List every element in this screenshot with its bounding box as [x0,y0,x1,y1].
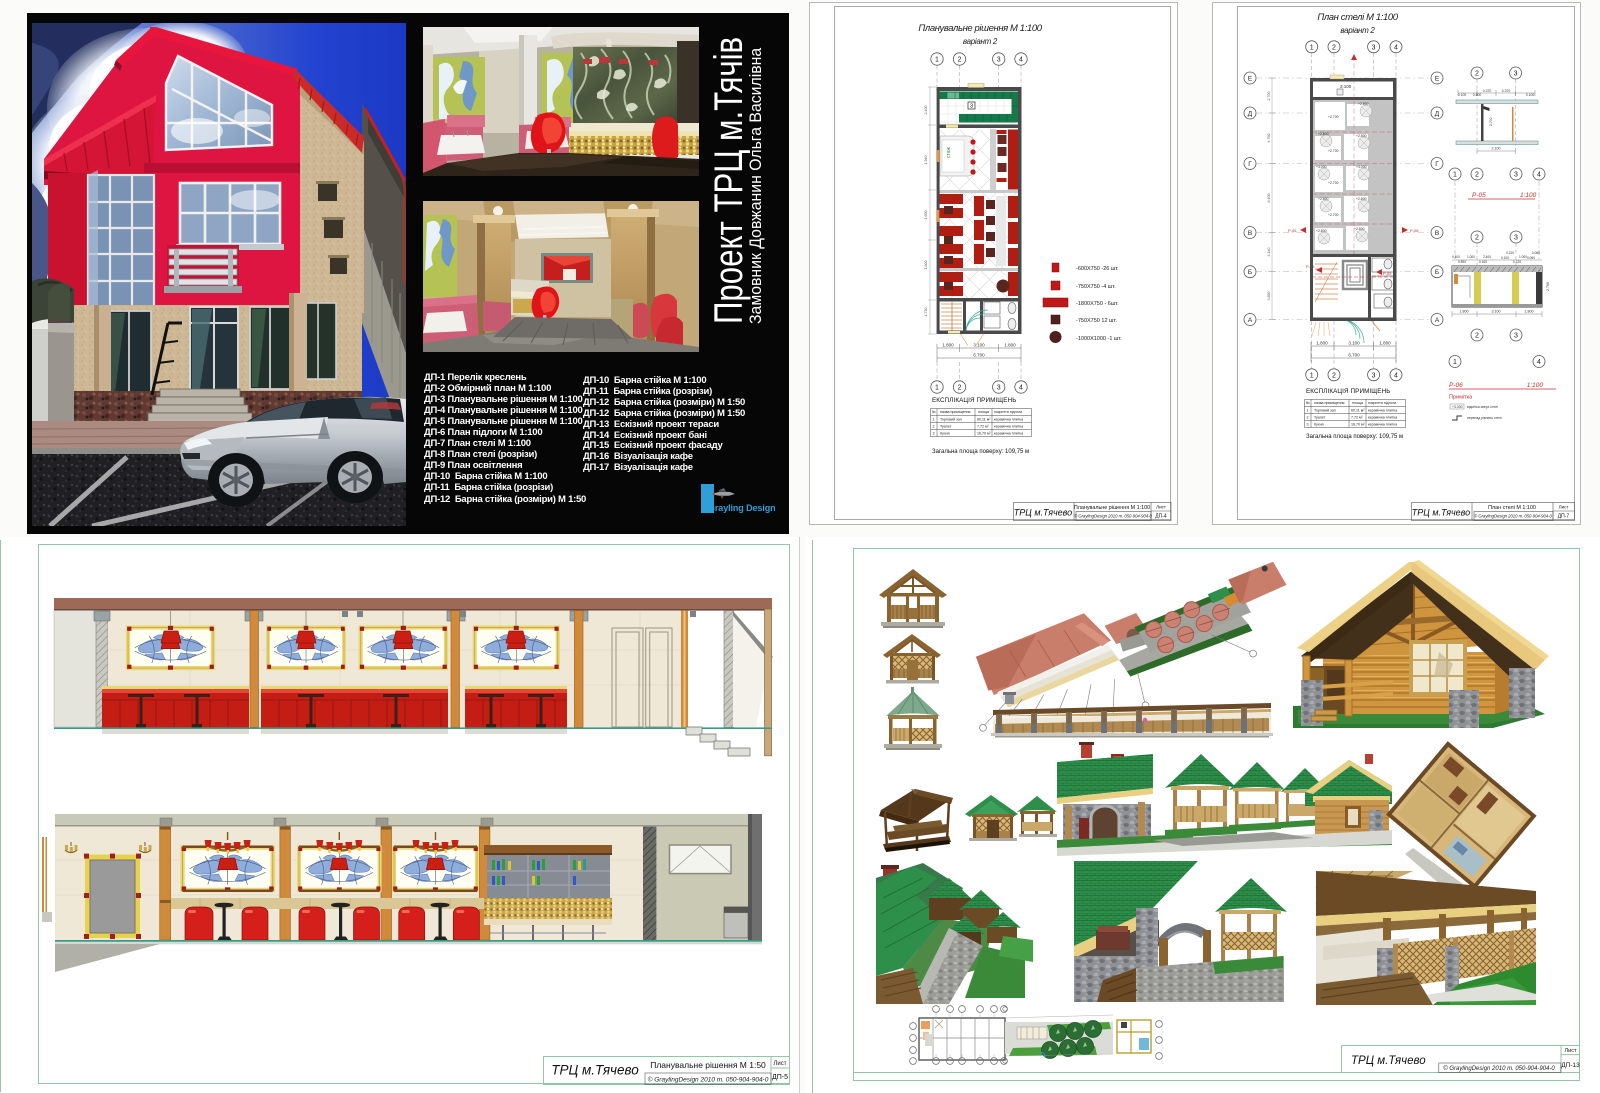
svg-text:2: 2 [933,425,935,429]
svg-text:-750X750 12 шт.: -750X750 12 шт. [1076,318,1117,324]
svg-text:3.100: 3.100 [1348,341,1360,346]
svg-text:№: № [932,410,936,414]
svg-text:3: 3 [1307,423,1309,427]
svg-text:2: 2 [958,385,962,392]
svg-text:1: 1 [933,418,935,422]
svg-text:1: 1 [1310,372,1314,379]
svg-text:1.600: 1.600 [924,211,928,220]
svg-text:відмітка зверх стелі: відмітка зверх стелі [1467,405,1498,409]
svg-text:+2.700: +2.700 [1328,149,1339,153]
svg-text:ТРЦ м.Тячево: ТРЦ м.Тячево [551,1063,639,1078]
svg-text:4: 4 [1394,44,1398,51]
svg-text:+2.700: +2.700 [1328,115,1339,119]
svg-text:керамічна плитка: керамічна плитка [994,418,1023,422]
svg-text:1: 1 [935,57,939,64]
svg-text:покриття підлоги: покриття підлоги [1368,401,1396,405]
svg-text:3: 3 [933,432,935,436]
svg-text:3.100: 3.100 [1492,310,1501,314]
svg-text:Туалет: Туалет [1314,416,1326,420]
svg-text:1:100: 1:100 [1520,192,1537,199]
svg-text:1.800: 1.800 [1525,310,1534,314]
svg-text:1.800: 1.800 [1379,341,1391,346]
svg-text:6.400: 6.400 [1267,194,1271,203]
svg-text:Б: Б [1248,269,1252,276]
svg-text:Лист: Лист [1559,505,1569,510]
svg-text:4.760: 4.760 [1267,134,1271,143]
svg-text:1.800: 1.800 [1460,310,1469,314]
svg-text:© GraylingDesign 2010 т. 050: © GraylingDesign 2010 т. 050-904-904-0 [1074,514,1152,519]
svg-text:+3.000: +3.000 [1356,165,1367,169]
svg-text:+2.800: +2.800 [1356,197,1367,201]
svg-text:Д: Д [1248,111,1253,118]
svg-text:А: А [1435,317,1440,324]
svg-text:1: 1 [1310,44,1314,51]
svg-text:2.700: 2.700 [1489,117,1493,126]
svg-text:3: 3 [997,57,1001,64]
svg-text:Г: Г [1248,161,1252,168]
svg-text:керамічна плитка: керамічна плитка [1368,423,1397,427]
svg-text:3: 3 [1372,372,1376,379]
svg-text:1.800: 1.800 [1316,341,1328,346]
svg-text:0.400: 0.400 [1452,255,1460,259]
svg-text:16,70 м²: 16,70 м² [977,432,991,436]
svg-text:3.140: 3.140 [1267,248,1271,257]
svg-text:0.590: 0.590 [1458,260,1466,264]
svg-text:ДП-7: ДП-7 [1558,514,1570,520]
svg-text:0.160: 0.160 [1479,260,1487,264]
svg-text:0.100: 0.100 [1458,93,1467,97]
svg-text:16,70 м²: 16,70 м² [1351,423,1365,427]
svg-text:площа: площа [978,410,989,414]
svg-text:Г: Г [1435,161,1439,168]
svg-text:ДП-13: ДП-13 [1561,1062,1580,1069]
svg-text:6.700: 6.700 [973,353,985,358]
svg-text:-1000X1000 -1 шт.: -1000X1000 -1 шт. [1076,336,1122,342]
svg-text:0.120: 0.120 [1513,260,1521,264]
svg-text:Примітка: Примітка [1449,395,1473,401]
svg-text:0.100: 0.100 [1526,93,1535,97]
svg-text:2: 2 [1307,416,1309,420]
svg-text:+2.800: +2.800 [1316,229,1327,233]
svg-text:0.220: 0.220 [1506,251,1514,255]
svg-text:1.800: 1.800 [942,343,954,348]
svg-text:1: 1 [1453,172,1457,179]
svg-text:Б: Б [1435,269,1439,276]
svg-text:4: 4 [1019,57,1023,64]
svg-text:Д: Д [1435,111,1440,118]
svg-text:1.940: 1.940 [924,156,928,165]
svg-text:3: 3 [997,385,1001,392]
svg-text:2.400: 2.400 [924,106,928,115]
svg-text:3.100: 3.100 [1340,84,1352,89]
svg-text:ТРЦ м.Тячево: ТРЦ м.Тячево [1014,508,1072,518]
svg-text:1:100: 1:100 [1527,382,1544,389]
svg-text:2.400: 2.400 [1483,255,1491,259]
svg-text:2: 2 [1475,71,1479,78]
svg-text:Планувальне рішення М 1:50: Планувальне рішення М 1:50 [650,1060,766,1070]
svg-text:0.370: 0.370 [1502,89,1511,93]
svg-text:0.060: 0.060 [1532,251,1540,255]
svg-text:Р-06: Р-06 [1449,382,1463,389]
svg-text:А: А [1248,317,1253,324]
svg-text:3: 3 [1514,333,1518,340]
svg-text:ДП-5: ДП-5 [772,1074,788,1081]
svg-text:Торговий зал: Торговий зал [940,418,962,422]
svg-text:1: 1 [1453,359,1457,366]
svg-text:Лист: Лист [1156,505,1166,510]
svg-text:керамічна плитка: керамічна плитка [994,432,1023,436]
svg-text:+2.800: +2.800 [1318,197,1329,201]
svg-text:Е: Е [1248,76,1253,83]
svg-text:4: 4 [1394,372,1398,379]
svg-text:0.370: 0.370 [1483,89,1492,93]
svg-text:ТРЦ м.Тячево: ТРЦ м.Тячево [1412,508,1470,518]
svg-text:В: В [1435,230,1439,237]
svg-text:© GraylingDesign 2010 т. 050: © GraylingDesign 2010 т. 050-904-904-0 [1474,514,1552,519]
svg-text:+2.700: +2.700 [1328,213,1339,217]
svg-text:В: В [1248,230,1252,237]
svg-text:7,72 м²: 7,72 м² [1351,416,1363,420]
svg-text:3: 3 [1372,44,1376,51]
svg-text:План стелі М 1:100: План стелі М 1:100 [1488,505,1536,511]
svg-text:+3.000: +3.000 [1316,165,1327,169]
svg-text:4: 4 [1019,385,1023,392]
svg-text:Е: Е [1435,76,1440,83]
svg-text:2: 2 [1332,372,1336,379]
svg-text:назва приміщення: назва приміщення [1314,401,1345,405]
svg-text:7,72 м²: 7,72 м² [977,425,989,429]
svg-text:назва приміщення: назва приміщення [940,410,971,414]
svg-text:6.700: 6.700 [1348,353,1360,358]
svg-text:1.000: 1.000 [1519,255,1527,259]
svg-text:2: 2 [1475,235,1479,242]
svg-text:Туалет: Туалет [940,425,952,429]
svg-text:2.100: 2.100 [1492,147,1501,151]
svg-text:-750X750 -4 шт.: -750X750 -4 шт. [1076,284,1116,290]
svg-text:керамічна плитка: керамічна плитка [994,425,1023,429]
svg-text:2.700: 2.700 [1267,92,1271,101]
svg-text:Кухня: Кухня [1314,423,1324,427]
svg-text:4: 4 [1537,359,1541,366]
svg-text:60,11 м²: 60,11 м² [1351,409,1365,413]
svg-text:3: 3 [1514,235,1518,242]
svg-text:2: 2 [958,57,962,64]
svg-text:1.600: 1.600 [924,261,928,270]
svg-text:ТРЦ м.Тячево: ТРЦ м.Тячево [1351,1055,1426,1067]
svg-text:1: 1 [1307,409,1309,413]
svg-text:перепад рівнень стелі: перепад рівнень стелі [1467,416,1502,420]
svg-text:-600X750 -26 шт.: -600X750 -26 шт. [1076,266,1119,272]
svg-text:1.800: 1.800 [1004,343,1016,348]
svg-text:© GraylingDesign 2010 т. 050: © GraylingDesign 2010 т. 050-904-904-0 [648,1076,769,1084]
svg-text:+2.800: +2.800 [1318,132,1329,136]
svg-text:+2.800: +2.800 [1356,134,1367,138]
svg-text:керамічна плитка: керамічна плитка [1368,416,1397,420]
svg-text:Лист: Лист [773,1061,786,1067]
svg-text:0.100: 0.100 [1501,256,1509,260]
svg-text:1.730: 1.730 [924,308,928,317]
svg-text:+2.800: +2.800 [1358,102,1369,106]
svg-text:1: 1 [935,385,939,392]
svg-text:3: 3 [1514,172,1518,179]
svg-text:2: 2 [1332,44,1336,51]
svg-text:3: 3 [1514,71,1518,78]
svg-text:+2.800: +2.800 [1354,227,1365,231]
svg-text:Планувальне рішення М 1:100: Планувальне рішення М 1:100 [1074,505,1150,511]
svg-text:покриття підлоги: покриття підлоги [994,410,1022,414]
svg-text:Лист: Лист [1565,1048,1577,1054]
svg-text:+2.700: +2.700 [1328,181,1339,185]
svg-text:керамічна плитка: керамічна плитка [1368,409,1397,413]
svg-text:0.060: 0.060 [1527,256,1535,260]
svg-text:© GraylingDesign 2010 т. 050: © GraylingDesign 2010 т. 050-904-904-0 [1443,1065,1555,1072]
svg-text:№: № [1306,401,1310,405]
svg-text:3: 3 [970,104,973,110]
svg-text:2: 2 [1475,172,1479,179]
svg-text:3.100: 3.100 [973,343,985,348]
svg-text:Р-06: Р-06 [1288,228,1297,233]
svg-text:1.000: 1.000 [1467,255,1475,259]
svg-text:2.700: 2.700 [1546,282,1550,291]
svg-text:ДП-4: ДП-4 [1155,514,1167,520]
svg-text:площа: площа [1352,401,1363,405]
svg-text:2: 2 [1475,333,1479,340]
svg-text:стаж: стаж [946,146,952,158]
svg-text:60,11 м²: 60,11 м² [977,418,991,422]
svg-text:Р-05: Р-05 [1472,192,1486,199]
svg-text:Р-06: Р-06 [1410,228,1419,233]
svg-text:-1800X750 - 6шт.: -1800X750 - 6шт. [1076,301,1119,307]
svg-text:4: 4 [1537,172,1541,179]
svg-text:Торговий зал: Торговий зал [1314,409,1336,413]
svg-text:3.850: 3.850 [1267,292,1271,301]
svg-text:Кухня: Кухня [940,432,950,436]
svg-text:Р-05: Р-05 [1383,271,1392,276]
svg-text:+3.300: +3.300 [1452,405,1463,409]
